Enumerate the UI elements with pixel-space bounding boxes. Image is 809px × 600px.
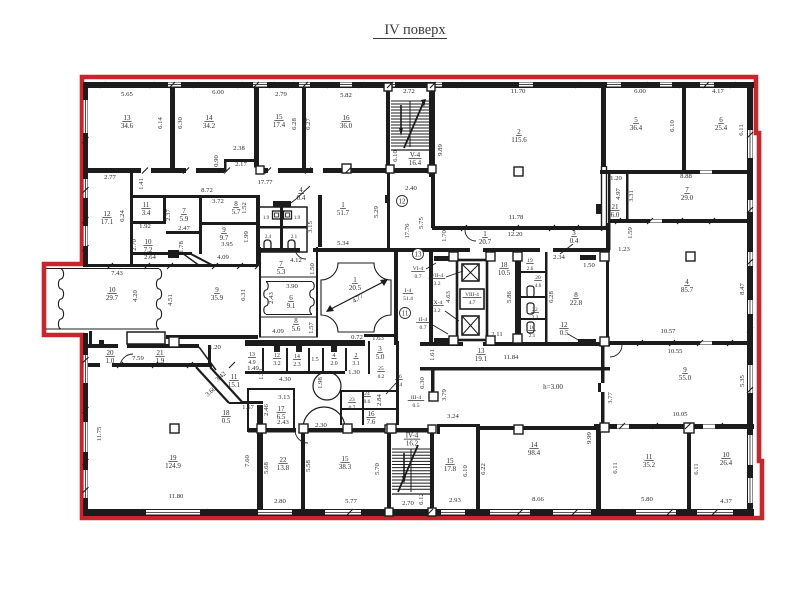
svg-text:5.75: 5.75 xyxy=(418,216,425,228)
svg-text:2.1: 2.1 xyxy=(291,235,298,240)
svg-text:16: 16 xyxy=(343,114,351,122)
svg-text:8: 8 xyxy=(234,200,238,208)
svg-text:0.5: 0.5 xyxy=(413,403,420,409)
svg-text:0.7: 0.7 xyxy=(415,274,422,280)
svg-text:V-4: V-4 xyxy=(410,151,421,159)
svg-text:20: 20 xyxy=(535,275,541,281)
svg-text:IV поверх: IV поверх xyxy=(384,22,446,38)
svg-text:8.88: 8.88 xyxy=(680,173,692,180)
svg-text:1: 1 xyxy=(483,230,487,238)
svg-text:5.3: 5.3 xyxy=(277,268,286,276)
svg-text:10.57: 10.57 xyxy=(660,328,676,335)
svg-text:1.70: 1.70 xyxy=(441,229,448,241)
svg-text:11.75: 11.75 xyxy=(96,426,103,441)
svg-text:3.31: 3.31 xyxy=(628,190,635,202)
svg-text:10.05: 10.05 xyxy=(672,411,688,418)
svg-text:I-4: I-4 xyxy=(405,288,412,294)
svg-text:15.1: 15.1 xyxy=(228,381,241,389)
svg-text:10.5: 10.5 xyxy=(498,269,511,277)
svg-text:2.64: 2.64 xyxy=(144,254,156,261)
svg-text:0.6: 0.6 xyxy=(364,399,371,405)
svg-text:34.2: 34.2 xyxy=(203,122,216,130)
svg-text:17: 17 xyxy=(278,405,286,413)
svg-text:55.0: 55.0 xyxy=(679,374,692,382)
svg-text:11: 11 xyxy=(402,309,409,317)
svg-text:9: 9 xyxy=(215,286,219,294)
svg-text:1.23: 1.23 xyxy=(618,246,630,253)
svg-text:VI-4: VI-4 xyxy=(413,266,424,272)
svg-text:h=3.00: h=3.00 xyxy=(543,383,563,391)
svg-text:36.4: 36.4 xyxy=(630,124,643,132)
svg-text:IV-4: IV-4 xyxy=(406,432,419,440)
svg-text:2: 2 xyxy=(517,128,521,136)
svg-text:15: 15 xyxy=(447,457,455,465)
svg-text:2.3: 2.3 xyxy=(293,362,300,368)
svg-text:11.78: 11.78 xyxy=(509,214,524,221)
svg-text:13: 13 xyxy=(124,114,132,122)
svg-text:1.52: 1.52 xyxy=(241,202,248,214)
svg-text:35.9: 35.9 xyxy=(211,294,224,302)
svg-text:6.11: 6.11 xyxy=(738,124,745,135)
svg-text:2.43: 2.43 xyxy=(268,291,275,303)
svg-text:2.47: 2.47 xyxy=(178,225,190,232)
svg-text:11.80: 11.80 xyxy=(169,493,184,500)
svg-text:12: 12 xyxy=(561,321,569,329)
svg-text:3.2: 3.2 xyxy=(434,308,441,314)
svg-text:1.21: 1.21 xyxy=(258,368,265,380)
svg-text:6.00: 6.00 xyxy=(212,89,224,96)
svg-text:3.4: 3.4 xyxy=(142,209,151,217)
svg-text:3.77: 3.77 xyxy=(607,391,614,403)
svg-text:6.30: 6.30 xyxy=(419,376,426,388)
svg-text:1.50: 1.50 xyxy=(309,262,316,274)
svg-text:3.24: 3.24 xyxy=(447,413,459,420)
svg-text:4: 4 xyxy=(685,278,689,286)
svg-text:7: 7 xyxy=(685,186,689,194)
svg-text:2.77: 2.77 xyxy=(104,174,116,181)
svg-text:0.4: 0.4 xyxy=(570,237,579,245)
svg-text:22: 22 xyxy=(280,456,288,464)
svg-text:9.89: 9.89 xyxy=(437,143,444,155)
svg-text:3.13: 3.13 xyxy=(278,394,290,401)
svg-text:23: 23 xyxy=(349,397,355,403)
svg-text:8.72: 8.72 xyxy=(201,187,213,194)
svg-text:0.7: 0.7 xyxy=(420,325,427,331)
svg-text:13: 13 xyxy=(478,347,486,355)
svg-text:11: 11 xyxy=(231,373,238,381)
svg-text:6.24: 6.24 xyxy=(119,209,126,221)
svg-text:II-4: II-4 xyxy=(419,317,428,323)
svg-text:2.3: 2.3 xyxy=(532,315,539,321)
svg-text:4: 4 xyxy=(333,353,336,359)
svg-text:2.93: 2.93 xyxy=(449,497,461,504)
svg-text:3.72: 3.72 xyxy=(212,198,224,205)
svg-text:0.4: 0.4 xyxy=(297,194,306,202)
svg-text:4.97: 4.97 xyxy=(615,187,622,199)
svg-text:1.98: 1.98 xyxy=(317,376,324,388)
svg-text:4.51: 4.51 xyxy=(167,294,174,306)
svg-text:10: 10 xyxy=(145,238,153,246)
svg-text:21: 21 xyxy=(612,203,620,211)
svg-text:19: 19 xyxy=(527,258,533,264)
svg-text:16: 16 xyxy=(529,325,535,331)
svg-text:2.1: 2.1 xyxy=(529,333,536,339)
svg-text:VII-4: VII-4 xyxy=(431,273,444,279)
svg-text:2.34: 2.34 xyxy=(553,254,565,261)
svg-text:4.09: 4.09 xyxy=(217,254,229,261)
svg-text:1.61: 1.61 xyxy=(429,349,436,361)
svg-text:5: 5 xyxy=(634,116,638,124)
svg-text:7.2: 7.2 xyxy=(144,246,153,254)
svg-text:3.2: 3.2 xyxy=(273,361,280,367)
svg-text:16.4: 16.4 xyxy=(409,159,422,167)
svg-text:5.86: 5.86 xyxy=(506,290,513,302)
svg-text:2.6: 2.6 xyxy=(527,266,534,272)
svg-text:4.7: 4.7 xyxy=(469,300,476,306)
svg-text:2.72: 2.72 xyxy=(403,88,415,95)
svg-text:4.12: 4.12 xyxy=(290,257,302,264)
svg-text:7: 7 xyxy=(182,207,186,215)
svg-text:14: 14 xyxy=(531,441,539,449)
svg-text:6.31: 6.31 xyxy=(240,289,247,301)
svg-text:0.90: 0.90 xyxy=(213,154,220,166)
svg-text:17.77: 17.77 xyxy=(257,179,273,186)
svg-text:36.0: 36.0 xyxy=(340,122,353,130)
svg-text:5.0: 5.0 xyxy=(376,353,385,361)
svg-text:1.92: 1.92 xyxy=(139,223,151,230)
svg-text:98.4: 98.4 xyxy=(528,449,541,457)
svg-text:20: 20 xyxy=(107,349,115,357)
svg-text:13: 13 xyxy=(249,352,255,358)
svg-text:11.70: 11.70 xyxy=(511,88,526,95)
svg-text:2.11: 2.11 xyxy=(491,331,502,338)
svg-text:12: 12 xyxy=(274,353,280,359)
svg-text:6.10: 6.10 xyxy=(669,119,676,131)
svg-text:2.46: 2.46 xyxy=(263,403,270,415)
svg-text:6.00: 6.00 xyxy=(634,88,646,95)
svg-text:5.80: 5.80 xyxy=(641,496,653,503)
svg-text:22.8: 22.8 xyxy=(570,299,583,307)
svg-text:8.47: 8.47 xyxy=(739,282,746,294)
svg-text:25.4: 25.4 xyxy=(715,124,728,132)
svg-text:26: 26 xyxy=(396,374,402,380)
svg-text:4.63: 4.63 xyxy=(445,290,452,302)
svg-text:5.58: 5.58 xyxy=(305,459,312,471)
svg-text:5.6: 5.6 xyxy=(292,325,301,333)
svg-text:6.28: 6.28 xyxy=(291,117,298,129)
svg-text:19.1: 19.1 xyxy=(475,355,488,363)
svg-text:1.99: 1.99 xyxy=(243,230,250,242)
svg-text:1.0: 1.0 xyxy=(106,357,115,365)
svg-text:2.17: 2.17 xyxy=(235,161,247,168)
svg-text:1.57: 1.57 xyxy=(308,321,315,333)
svg-text:2.4: 2.4 xyxy=(265,235,272,240)
svg-text:5.82: 5.82 xyxy=(340,92,352,99)
svg-text:6.12: 6.12 xyxy=(418,493,425,505)
svg-text:11.84: 11.84 xyxy=(504,354,519,361)
svg-text:7.6: 7.6 xyxy=(367,418,376,426)
svg-text:14: 14 xyxy=(206,114,214,122)
svg-text:12.20: 12.20 xyxy=(507,231,523,238)
svg-text:1.59: 1.59 xyxy=(627,226,634,238)
svg-text:6: 6 xyxy=(289,294,293,302)
svg-text:8: 8 xyxy=(294,317,298,325)
svg-text:0.5: 0.5 xyxy=(560,329,569,337)
svg-text:24: 24 xyxy=(364,391,370,397)
svg-text:2.37: 2.37 xyxy=(165,208,172,220)
svg-text:3.15: 3.15 xyxy=(307,220,314,232)
svg-text:11: 11 xyxy=(143,201,150,209)
svg-text:29.0: 29.0 xyxy=(681,194,694,202)
svg-text:1.78: 1.78 xyxy=(178,240,185,252)
svg-text:51.4: 51.4 xyxy=(403,296,413,302)
svg-text:6.28: 6.28 xyxy=(548,290,555,302)
svg-text:85.7: 85.7 xyxy=(681,286,694,294)
svg-text:12: 12 xyxy=(104,210,112,218)
svg-text:16: 16 xyxy=(368,410,376,418)
svg-text:10.55: 10.55 xyxy=(667,348,683,355)
svg-text:2.84: 2.84 xyxy=(376,393,383,405)
svg-text:0.2: 0.2 xyxy=(378,374,385,380)
svg-text:1.30: 1.30 xyxy=(348,369,360,376)
svg-text:5.29: 5.29 xyxy=(373,205,380,217)
svg-text:115.6: 115.6 xyxy=(511,136,527,144)
svg-text:1.67: 1.67 xyxy=(242,404,254,411)
svg-text:VIII-4: VIII-4 xyxy=(465,292,479,298)
svg-text:13.8: 13.8 xyxy=(277,464,290,472)
svg-text:1: 1 xyxy=(341,201,345,209)
svg-text:2.38: 2.38 xyxy=(233,145,245,152)
svg-text:1.9: 1.9 xyxy=(156,357,165,365)
svg-text:6.11: 6.11 xyxy=(612,462,619,473)
svg-text:5.7: 5.7 xyxy=(232,208,241,216)
svg-text:25: 25 xyxy=(378,366,384,372)
svg-text:10: 10 xyxy=(723,451,731,459)
svg-text:2.43: 2.43 xyxy=(277,419,289,426)
svg-text:6.10: 6.10 xyxy=(392,149,399,161)
svg-text:3.1: 3.1 xyxy=(352,361,359,367)
svg-text:5.65: 5.65 xyxy=(121,91,133,98)
svg-text:15: 15 xyxy=(342,455,350,463)
svg-text:124.9: 124.9 xyxy=(165,462,181,470)
svg-text:0.4: 0.4 xyxy=(396,382,403,388)
svg-text:6: 6 xyxy=(719,116,723,124)
svg-text:4.17: 4.17 xyxy=(712,88,724,95)
svg-text:3.60: 3.60 xyxy=(204,385,218,398)
svg-text:6.22: 6.22 xyxy=(480,463,487,475)
svg-text:7.60: 7.60 xyxy=(244,454,251,466)
svg-text:4.77: 4.77 xyxy=(351,292,365,305)
svg-text:5.68: 5.68 xyxy=(263,461,270,473)
svg-text:IX-4: IX-4 xyxy=(432,300,443,306)
svg-text:2.40: 2.40 xyxy=(405,185,417,192)
svg-text:17.4: 17.4 xyxy=(273,121,286,129)
svg-text:35.2: 35.2 xyxy=(643,461,656,469)
svg-text:6.30: 6.30 xyxy=(177,116,184,128)
svg-text:2.79: 2.79 xyxy=(275,91,287,98)
svg-text:2: 2 xyxy=(355,353,358,359)
svg-text:19: 19 xyxy=(170,454,178,462)
svg-text:1: 1 xyxy=(353,276,357,284)
svg-text:34.6: 34.6 xyxy=(121,122,134,130)
svg-text:9.99: 9.99 xyxy=(586,431,593,443)
svg-text:0.72: 0.72 xyxy=(351,334,363,341)
svg-text:8: 8 xyxy=(574,291,578,299)
svg-text:12: 12 xyxy=(399,197,407,205)
svg-text:5.35: 5.35 xyxy=(739,374,746,386)
svg-text:3.90: 3.90 xyxy=(286,283,298,290)
svg-text:1.41: 1.41 xyxy=(138,178,145,190)
svg-text:3.79: 3.79 xyxy=(441,388,448,400)
svg-text:11: 11 xyxy=(646,453,653,461)
svg-text:9: 9 xyxy=(683,366,687,374)
svg-text:1.63: 1.63 xyxy=(372,335,384,342)
svg-text:5.34: 5.34 xyxy=(337,240,349,247)
svg-text:9.1: 9.1 xyxy=(287,302,296,310)
svg-text:26.4: 26.4 xyxy=(720,459,733,467)
svg-text:10: 10 xyxy=(109,286,117,294)
svg-text:3: 3 xyxy=(378,345,382,353)
svg-text:5.77: 5.77 xyxy=(345,498,357,505)
svg-text:6.10: 6.10 xyxy=(462,464,469,476)
svg-text:3.95: 3.95 xyxy=(221,241,233,248)
svg-text:4.09: 4.09 xyxy=(272,328,284,335)
svg-text:6.11: 6.11 xyxy=(693,463,700,474)
svg-text:8.66: 8.66 xyxy=(532,496,544,503)
svg-text:4.6: 4.6 xyxy=(535,283,542,289)
svg-text:1.5: 1.5 xyxy=(311,357,318,363)
svg-text:22: 22 xyxy=(532,307,538,313)
svg-text:17.8: 17.8 xyxy=(444,465,457,473)
svg-text:1.20: 1.20 xyxy=(610,175,622,182)
svg-text:7.59: 7.59 xyxy=(132,355,144,362)
svg-text:4.20: 4.20 xyxy=(132,289,139,301)
svg-text:1.50: 1.50 xyxy=(583,262,595,269)
svg-text:0.7: 0.7 xyxy=(349,405,356,411)
svg-text:20.5: 20.5 xyxy=(349,284,362,292)
svg-text:7.43: 7.43 xyxy=(111,270,123,277)
svg-text:14: 14 xyxy=(294,354,300,360)
svg-text:21: 21 xyxy=(157,349,165,357)
svg-text:2.30: 2.30 xyxy=(315,422,327,429)
svg-text:38.3: 38.3 xyxy=(339,463,352,471)
svg-text:17.1: 17.1 xyxy=(101,218,114,226)
svg-text:13: 13 xyxy=(415,250,423,258)
svg-text:5.70: 5.70 xyxy=(374,462,381,474)
svg-text:6.14: 6.14 xyxy=(157,116,164,128)
svg-text:7: 7 xyxy=(279,260,283,268)
svg-text:51.7: 51.7 xyxy=(337,209,350,217)
svg-text:4.30: 4.30 xyxy=(279,376,291,383)
svg-text:2.70: 2.70 xyxy=(131,238,138,250)
svg-text:18: 18 xyxy=(501,261,509,269)
svg-text:III-4: III-4 xyxy=(411,395,421,401)
svg-text:5.9: 5.9 xyxy=(180,215,189,223)
svg-text:6.0: 6.0 xyxy=(611,211,620,219)
svg-text:9: 9 xyxy=(222,226,226,234)
svg-text:1.9: 1.9 xyxy=(294,216,301,221)
svg-text:2.80: 2.80 xyxy=(274,498,286,505)
svg-text:1.9: 1.9 xyxy=(263,216,270,221)
svg-text:3.2: 3.2 xyxy=(434,281,441,287)
svg-text:2.70: 2.70 xyxy=(402,500,414,507)
svg-text:29.7: 29.7 xyxy=(106,294,119,302)
svg-text:6.27: 6.27 xyxy=(305,117,312,129)
svg-text:18: 18 xyxy=(223,409,231,417)
svg-text:4.37: 4.37 xyxy=(720,498,732,505)
svg-text:0.5: 0.5 xyxy=(222,417,231,425)
svg-text:15: 15 xyxy=(276,113,284,121)
svg-text:20.7: 20.7 xyxy=(479,238,492,246)
svg-text:1.20: 1.20 xyxy=(209,344,221,351)
svg-text:2.0: 2.0 xyxy=(330,361,337,367)
svg-text:17.76: 17.76 xyxy=(404,223,411,239)
svg-text:16.2: 16.2 xyxy=(406,440,419,448)
